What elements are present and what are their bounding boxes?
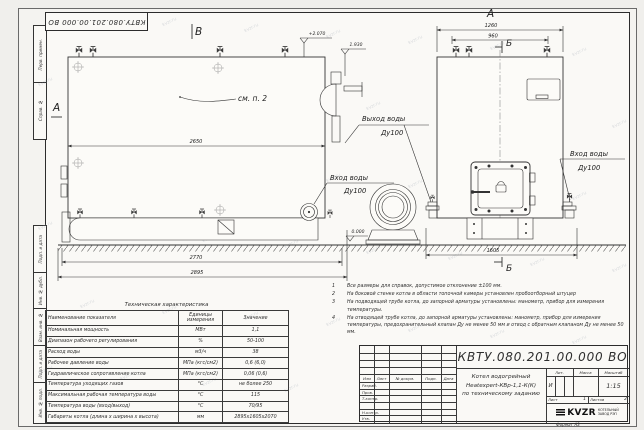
watermark-text: kvzr.ru	[162, 161, 178, 172]
tech-table: Наименование показателя Единицы измерени…	[45, 310, 289, 423]
lit-value: И	[546, 376, 555, 396]
table-header-row: Наименование показателя Единицы измерени…	[46, 311, 289, 326]
rotated-doc-number-stamp: КВТУ.080.201.00.000 ВО	[45, 12, 148, 31]
watermark-text: kvzr.ru	[244, 23, 260, 34]
watermark-text: kvzr.ru	[38, 77, 54, 88]
table-title: Техническая характеристика	[45, 302, 288, 308]
scale-header: Масштаб	[598, 368, 629, 376]
sign-utv: Утв.	[362, 415, 389, 422]
watermark-text: kvzr.ru	[326, 173, 342, 184]
sign-tkontr: Т.контр.	[362, 395, 389, 402]
table-row: Диапазон рабочего регулирования%50-100	[46, 336, 289, 347]
scale-value: 1:15	[598, 376, 629, 396]
rev-col-data: Дата	[441, 374, 456, 382]
watermark-text: kvzr.ru	[572, 47, 588, 58]
watermark-text: kvzr.ru	[202, 233, 218, 244]
watermark-text: kvzr.ru	[284, 95, 300, 106]
sheets-cell: Листов2	[590, 396, 627, 403]
note-3: 3На подводящей трубе котла, до запорной …	[332, 299, 628, 313]
lit-header: Лит.	[546, 368, 573, 376]
product-description: Котел водогрейный Heatexpert-КВр-1,1-К(К…	[458, 373, 544, 399]
watermark-text: kvzr.ru	[326, 29, 342, 40]
rev-col-dokum: № докум.	[389, 374, 421, 382]
table-row: Гидравлическое сопротивление котлаМПа (к…	[46, 369, 289, 380]
sheet-cell: Лист1	[548, 396, 586, 403]
watermark-text: kvzr.ru	[284, 239, 300, 250]
watermark-text: kvzr.ru	[120, 227, 136, 238]
watermark-text: kvzr.ru	[120, 83, 136, 94]
doc-number: КВТУ.080.201.00.000 ВО	[456, 346, 629, 368]
watermark-text: kvzr.ru	[572, 191, 588, 202]
company-cell: KVZR КОТЕЛЬНЫЙ ЗАВОД РЭП	[547, 404, 628, 422]
watermark-text: kvzr.ru	[408, 179, 424, 190]
kvzr-logo-icon	[556, 409, 565, 417]
table-row: Температура уходящих газов°Сне более 250	[46, 379, 289, 390]
watermark-text: kvzr.ru	[448, 251, 464, 262]
watermark-text: kvzr.ru	[202, 89, 218, 100]
watermark-text: kvzr.ru	[530, 113, 546, 124]
table-row: Расход водым3/ч38	[46, 347, 289, 358]
rev-col-list: Лист	[374, 374, 389, 382]
watermark-text: kvzr.ru	[490, 185, 506, 196]
watermark-text: kvzr.ru	[448, 107, 464, 118]
watermark-text: kvzr.ru	[366, 101, 382, 112]
watermark-text: kvzr.ru	[366, 245, 382, 256]
tech-characteristics: Техническая характеристика Наименование …	[45, 302, 288, 423]
massa-header: Масса	[573, 368, 598, 376]
sign-razrab: Разраб.	[362, 382, 389, 389]
company-name: КОТЕЛЬНЫЙ ЗАВОД РЭП	[598, 409, 619, 417]
watermark-text: kvzr.ru	[490, 41, 506, 52]
rev-col-podp: Подп.	[421, 374, 441, 382]
note-2: 2На боковой стенке котла в области топоч…	[332, 291, 628, 298]
table-row: Габариты котла (длина х ширина х высота)…	[46, 412, 289, 423]
table-row: Максимальная рабочая температура воды°С1…	[46, 390, 289, 401]
note-1: 1Все размеры для справок, допустимое отк…	[332, 283, 628, 290]
watermark-text: kvzr.ru	[612, 263, 628, 274]
table-row: Номинальная мощностьМВт1,1	[46, 326, 289, 337]
watermark-text: kvzr.ru	[244, 167, 260, 178]
rev-col-izm: Изм	[360, 374, 374, 382]
title-block: Изм Лист № докум. Подп. Дата Разраб. Про…	[359, 345, 628, 422]
table-row: Температура воды (вход/выход)°С70/95	[46, 401, 289, 412]
watermark-text: kvzr.ru	[38, 221, 54, 232]
watermark-text: kvzr.ru	[530, 257, 546, 268]
watermark-text: kvzr.ru	[612, 119, 628, 130]
table-row: Рабочее давление водыМПа (кгс/см2)0,6 (6…	[46, 358, 289, 369]
notes-list: 1Все размеры для справок, допустимое отк…	[332, 283, 628, 337]
format-label: Формат А3	[556, 422, 580, 427]
watermark-text: kvzr.ru	[408, 35, 424, 46]
watermark-text: kvzr.ru	[80, 155, 96, 166]
watermark-text: kvzr.ru	[162, 17, 178, 28]
note-4: 4На отводящей трубе котла, до запорной а…	[332, 315, 628, 337]
kvzr-logo-text: KVZR	[567, 408, 596, 418]
